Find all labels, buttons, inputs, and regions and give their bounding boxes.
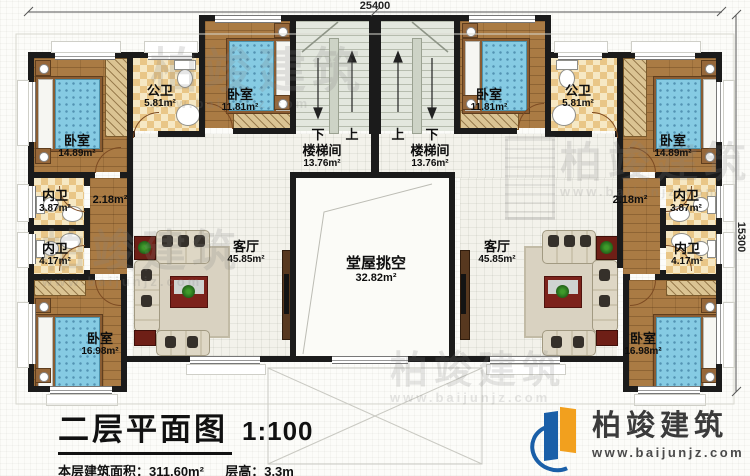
floor-area-value: 311.60m² — [149, 464, 204, 476]
nightstand — [701, 368, 717, 383]
room-name: 内卫 — [670, 189, 702, 203]
sofa-cushion — [178, 235, 189, 247]
room-area: 13.76m² — [302, 158, 341, 170]
corridor-right-floor — [623, 178, 660, 274]
plant — [556, 285, 569, 298]
room-name: 客厅 — [478, 240, 515, 254]
wall — [127, 52, 133, 178]
window-sill — [17, 302, 29, 368]
brand-website: www.baijunjz.com — [592, 445, 744, 460]
room-name: 卧室 — [471, 88, 508, 102]
closet-bedroom-top-left — [105, 58, 129, 137]
watermark-url: www.baijunjz.com — [390, 390, 566, 405]
wall — [199, 15, 205, 137]
window-sill — [723, 184, 735, 222]
room-name: 堂屋挑空 — [346, 256, 406, 272]
room-label-void: 堂屋挑空 32.82m² — [346, 256, 406, 285]
room-area: 3.87m² — [39, 203, 71, 215]
stair-up-mark-right: 上 — [391, 124, 404, 143]
nightstand — [462, 23, 478, 38]
window-sill — [723, 232, 735, 268]
room-name: 公卫 — [562, 84, 594, 98]
room-name: 楼梯间 — [410, 144, 449, 158]
stair-down-mark-left: 下 — [311, 124, 324, 143]
stair-up-mark-left: 上 — [345, 124, 358, 143]
nightstand — [35, 60, 51, 76]
wall — [617, 172, 623, 268]
dimension-width: 25400 — [360, 0, 391, 12]
logo-tower-blue — [544, 411, 558, 461]
room-area: 11.81m² — [471, 102, 508, 114]
window — [190, 356, 260, 364]
plan-title: 二层平面图 — [58, 404, 228, 449]
room-area: 4.17m² — [671, 256, 703, 268]
room-area: 4.17m² — [39, 256, 71, 268]
room-name: 卧室 — [222, 88, 259, 102]
plant — [138, 241, 151, 254]
wall — [233, 128, 296, 134]
window-sill — [17, 184, 29, 222]
wall — [127, 172, 133, 268]
window — [490, 356, 560, 364]
brand-logo-text: 柏竣建筑 www.baijunjz.com — [592, 412, 744, 460]
nightstand — [701, 60, 717, 76]
room-label-inner-bath2-right: 内卫 4.17m² — [671, 242, 703, 268]
room-name: 内卫 — [671, 242, 703, 256]
room-area: 14.89m² — [654, 148, 691, 160]
sofa-cushion — [187, 336, 198, 348]
sofa-right-chaise — [592, 260, 618, 332]
brand-logo-block: 柏竣建筑 www.baijunjz.com — [530, 404, 746, 470]
coffee-table-right — [544, 276, 582, 308]
room-area: 11.81m² — [222, 102, 259, 114]
wall — [28, 225, 90, 231]
cabinet-left-bottom — [134, 330, 156, 346]
bed-mattress — [656, 317, 701, 387]
wall — [454, 15, 460, 134]
wall — [454, 128, 517, 134]
sofa-cushion — [564, 235, 575, 247]
window-sill — [723, 80, 735, 146]
sofa-cushion — [548, 235, 559, 247]
wall — [290, 172, 296, 362]
room-label-staircase-right: 楼梯间 13.76m² — [410, 144, 449, 170]
sofa-cushion — [141, 295, 152, 307]
room-name: 卧室 — [654, 134, 691, 148]
bed-pillow — [38, 79, 53, 149]
wall — [623, 274, 630, 280]
watermark-logo-glyph — [505, 136, 555, 220]
room-area: 45.85m² — [227, 254, 264, 266]
room-area: 32.82m² — [346, 272, 406, 285]
room-label-staircase-left: 楼梯间 13.76m² — [302, 144, 341, 170]
tv-right — [461, 274, 466, 314]
stair-stringer-left — [329, 38, 339, 134]
coffee-table-left — [170, 276, 208, 308]
wall — [84, 178, 90, 186]
sink — [176, 104, 200, 126]
window — [28, 304, 36, 364]
wall — [545, 15, 551, 137]
floor-area-label: 本层建筑面积： — [58, 464, 149, 476]
wall — [660, 178, 666, 186]
window-sill — [486, 364, 566, 375]
window-sill — [186, 364, 266, 375]
window — [28, 82, 36, 142]
room-label-corridor-right: 2.18m² — [613, 194, 648, 207]
wall — [660, 225, 722, 231]
sofa-right-seats — [542, 330, 596, 356]
room-area: 5.81m² — [144, 98, 176, 110]
window — [148, 52, 192, 60]
room-name: 卧室 — [58, 134, 95, 148]
title-block: 二层平面图 1:100 本层建筑面积：311.60m² 层高：3.3m — [58, 404, 314, 476]
room-area: 16.98m² — [81, 346, 118, 358]
nightstand — [274, 23, 290, 38]
wall — [84, 208, 90, 248]
window-sill — [17, 80, 29, 146]
sofa-cushion — [573, 336, 584, 348]
room-name: 楼梯间 — [302, 144, 341, 158]
floor-height-label: 层高： — [225, 464, 264, 476]
wall — [260, 356, 332, 362]
sofa-cushion — [599, 295, 610, 307]
wall — [120, 274, 127, 280]
nightstand — [274, 95, 290, 110]
room-label-living-right: 客厅 45.85m² — [478, 240, 515, 266]
sofa-left-back — [156, 230, 210, 264]
room-area: 16.98m² — [624, 346, 661, 358]
window — [50, 386, 112, 394]
room-area: 2.18m² — [93, 194, 128, 207]
room-label-inner-bath1-left: 内卫 3.87m² — [39, 189, 71, 215]
window — [558, 52, 602, 60]
tv-left — [284, 274, 289, 314]
brand-name: 柏竣建筑 — [592, 412, 744, 441]
window-sill — [554, 41, 608, 53]
plan-subtitle: 本层建筑面积：311.60m² 层高：3.3m — [58, 461, 314, 476]
room-label-inner-bath1-right: 内卫 3.87m² — [670, 189, 702, 215]
window-sill — [17, 232, 29, 268]
window — [28, 186, 36, 218]
nightstand — [701, 148, 717, 164]
title-underline — [58, 452, 232, 455]
room-area: 3.87m² — [670, 203, 702, 215]
room-area: 2.18m² — [613, 194, 648, 207]
room-name: 内卫 — [39, 189, 71, 203]
dimension-height: 15300 — [735, 222, 747, 253]
room-label-bedroom-top-left: 卧室 14.89m² — [58, 134, 95, 160]
wall — [660, 208, 666, 248]
window-sill — [631, 41, 701, 53]
room-name: 客厅 — [227, 240, 264, 254]
window-sill — [723, 302, 735, 368]
room-label-bedroom-top-right: 卧室 14.89m² — [654, 134, 691, 160]
wall — [158, 131, 205, 137]
window-sill — [51, 41, 121, 53]
plan-scale: 1:100 — [242, 416, 314, 447]
closet-bedroom-bottom-left — [34, 280, 86, 296]
sofa-cushion — [599, 269, 610, 281]
wall — [449, 172, 455, 362]
nightstand — [701, 298, 717, 313]
closet-bedroom-top-right — [623, 58, 647, 137]
plant — [182, 285, 195, 298]
room-label-bedroom-mid-right: 卧室 11.81m² — [471, 88, 508, 114]
sofa-cushion — [165, 336, 176, 348]
window — [28, 234, 36, 264]
window — [55, 52, 115, 60]
sofa-right-back — [542, 230, 596, 264]
window — [332, 356, 408, 364]
room-area: 5.81m² — [562, 98, 594, 110]
window — [635, 52, 695, 60]
wall — [121, 280, 127, 392]
sofa-cushion — [580, 235, 591, 247]
wall — [617, 52, 623, 178]
room-name: 内卫 — [39, 242, 71, 256]
room-name: 公卫 — [144, 84, 176, 98]
room-label-bedroom-mid-left: 卧室 11.81m² — [222, 88, 259, 114]
sofa-left-seats — [156, 330, 210, 356]
wall-party — [369, 15, 381, 134]
window — [469, 15, 535, 23]
sofa-cushion — [194, 235, 205, 247]
brand-logo-icon — [530, 406, 588, 468]
sofa-cushion — [141, 269, 152, 281]
closet-bedroom-bottom-right — [666, 280, 718, 296]
nightstand — [35, 298, 51, 313]
wall — [121, 356, 190, 362]
wall — [660, 270, 666, 280]
logo-tower-orange — [560, 407, 576, 453]
wall — [655, 172, 722, 178]
wall — [28, 172, 95, 178]
wall — [560, 356, 629, 362]
nightstand — [35, 148, 51, 164]
floor-plan-canvas: 柏竣建筑 www.baijunjz.com 柏竣建筑 www.baijunjz.… — [0, 0, 750, 476]
sofa-cushion — [162, 235, 173, 247]
floor-height-value: 3.3m — [264, 464, 294, 476]
room-label-public-bath-right: 公卫 5.81m² — [562, 84, 594, 110]
wall — [290, 15, 296, 134]
plant — [600, 241, 613, 254]
room-name: 卧室 — [81, 332, 118, 346]
sofa-cushion — [551, 336, 562, 348]
room-label-living-left: 客厅 45.85m² — [227, 240, 264, 266]
room-label-inner-bath2-left: 内卫 4.17m² — [39, 242, 71, 268]
room-label-public-bath-left: 公卫 5.81m² — [144, 84, 176, 110]
window — [215, 15, 281, 23]
cabinet-right-top — [596, 236, 618, 260]
sofa-left-chaise — [134, 260, 160, 332]
window — [638, 386, 700, 394]
room-area: 13.76m² — [410, 158, 449, 170]
cabinet-right-bottom — [596, 330, 618, 346]
room-name: 卧室 — [624, 332, 661, 346]
room-label-corridor-left: 2.18m² — [93, 194, 128, 207]
toilet-bowl — [177, 69, 193, 88]
cabinet-left-top — [134, 236, 156, 260]
nightstand — [35, 368, 51, 383]
window-sill — [144, 41, 198, 53]
stair-stringer-right — [412, 38, 422, 134]
room-label-bedroom-bottom-right: 卧室 16.98m² — [624, 332, 661, 358]
wall — [290, 172, 455, 178]
room-area: 45.85m² — [478, 254, 515, 266]
room-area: 14.89m² — [58, 148, 95, 160]
room-label-bedroom-bottom-left: 卧室 16.98m² — [81, 332, 118, 358]
stair-down-mark-right: 下 — [425, 124, 438, 143]
corridor-left-floor — [90, 178, 127, 274]
wall — [84, 270, 90, 280]
